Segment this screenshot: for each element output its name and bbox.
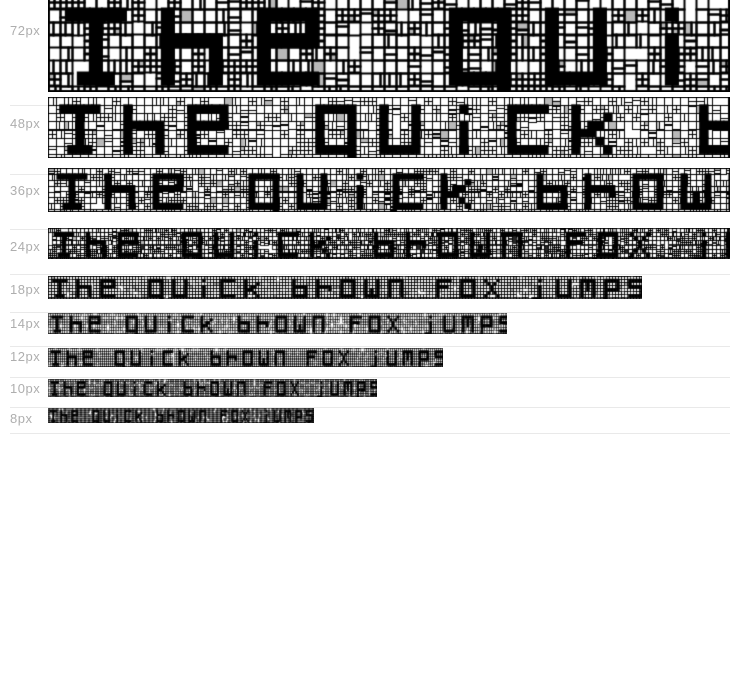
font-sample-8px [48, 408, 314, 423]
font-sample-48px [48, 97, 730, 158]
font-sample-36px [48, 168, 730, 212]
font-sample-72px [48, 0, 730, 92]
font-sample-24px [48, 228, 730, 259]
row-separator [10, 346, 730, 347]
size-label-10: 10px [10, 381, 40, 397]
row-separator [10, 433, 730, 434]
font-sample-10px [48, 379, 377, 397]
size-label-48: 48px [10, 116, 40, 132]
size-label-36: 36px [10, 183, 40, 199]
font-sample-12px [48, 348, 443, 367]
row-separator [10, 377, 730, 378]
size-label-14: 14px [10, 316, 40, 332]
size-label-24: 24px [10, 239, 40, 255]
size-label-72: 72px [10, 23, 40, 39]
font-sample-18px [48, 276, 642, 299]
size-label-18: 18px [10, 282, 40, 298]
font-waterfall-preview: 72px48px36px24px18px14px12px10px8px [0, 0, 730, 700]
row-separator [10, 274, 730, 275]
size-label-8: 8px [10, 411, 32, 427]
font-sample-14px [48, 313, 507, 334]
size-label-12: 12px [10, 349, 40, 365]
